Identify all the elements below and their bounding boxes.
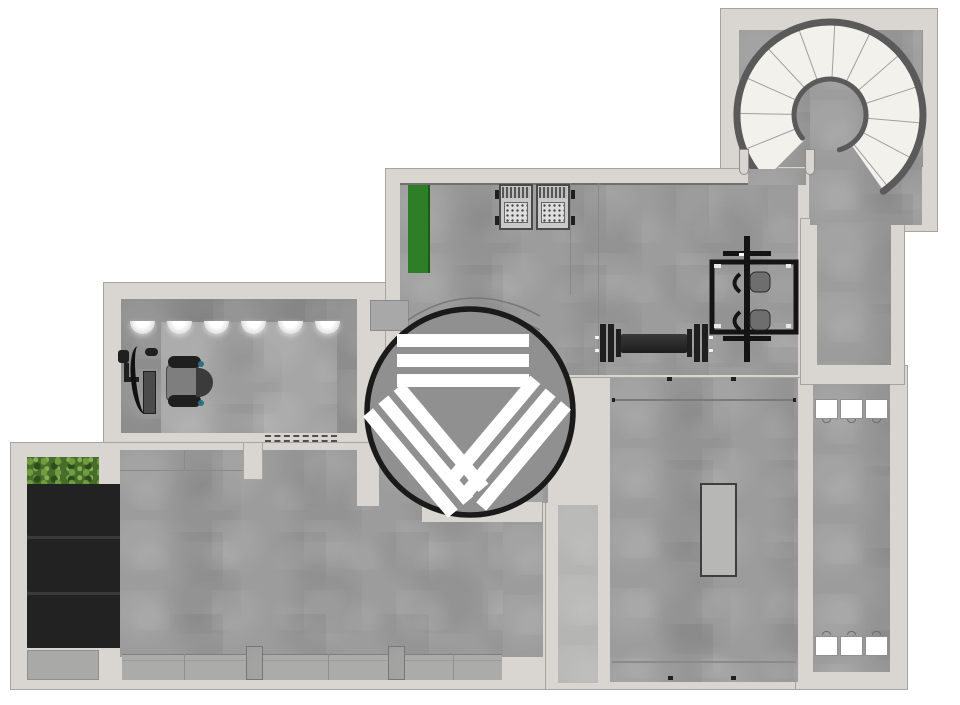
- barbell-bar: [621, 334, 687, 353]
- rail-end: [612, 398, 615, 402]
- corridor-floor: [817, 222, 891, 365]
- bin-handle: [872, 631, 881, 635]
- floor-plan-canvas: [0, 0, 960, 705]
- white-bin: [865, 636, 888, 656]
- green-exercise-mat: [408, 185, 430, 273]
- rack-post: [571, 216, 575, 225]
- rack-tray: [541, 202, 565, 223]
- bin-handle: [847, 631, 856, 635]
- gym-room-top-edge: [400, 183, 798, 185]
- stair-doorway-floor: [748, 169, 806, 185]
- wall-rail-bottom: [612, 661, 796, 663]
- rack-grill: [539, 187, 567, 198]
- machine-accent: [198, 400, 204, 406]
- black-cabinets: [27, 484, 121, 648]
- bin-handle: [822, 631, 831, 635]
- wall-stub: [243, 442, 263, 480]
- white-bin: [815, 399, 838, 419]
- doorway-stub: [805, 149, 815, 175]
- power-rack: [706, 236, 802, 364]
- main-room-seam: [120, 470, 247, 471]
- nook-floor-patch: [27, 650, 99, 680]
- machine-pad: [143, 371, 156, 414]
- white-bin: [840, 399, 863, 419]
- office-right-strip: [337, 299, 357, 433]
- wall-pillar: [246, 646, 263, 680]
- machine-headrest: [196, 368, 213, 397]
- window-seam: [184, 654, 185, 680]
- barbell-plate: [694, 324, 700, 362]
- wall-tick: [731, 377, 736, 381]
- circle-stripe-logo: [360, 302, 581, 523]
- white-bin: [815, 636, 838, 656]
- rack-unit: [536, 184, 570, 230]
- wall-rail-top: [612, 399, 796, 401]
- rail-tick: [731, 676, 736, 680]
- narrow-room-floor: [813, 384, 890, 672]
- storage-rack: [499, 184, 571, 231]
- machine-grip: [145, 348, 158, 356]
- black-cabinet: [27, 595, 121, 648]
- loaded-barbell: [594, 322, 714, 364]
- black-cabinet: [27, 539, 121, 592]
- floor-mat: [700, 483, 737, 577]
- planter-greenery: [27, 457, 99, 485]
- white-bin: [840, 636, 863, 656]
- window-seam: [328, 654, 329, 680]
- rack-post: [571, 190, 575, 199]
- white-bin: [865, 399, 888, 419]
- barbell-plate: [687, 329, 692, 357]
- machine-accent: [198, 361, 204, 367]
- rail-end: [793, 398, 796, 402]
- rack-tray: [504, 202, 528, 223]
- barbell-plate: [608, 324, 614, 362]
- machine-knob: [118, 350, 129, 363]
- wall-tick: [667, 377, 672, 381]
- wall-pillar: [388, 646, 405, 680]
- barbell-plate: [600, 324, 606, 362]
- doorway-stub: [739, 149, 749, 175]
- black-cabinet: [27, 484, 121, 536]
- rack-grill: [502, 187, 530, 198]
- door-threshold: [265, 440, 337, 442]
- window-band-line: [122, 660, 502, 661]
- door-threshold: [265, 435, 337, 437]
- light-corridor-floor: [558, 505, 598, 683]
- main-room-seam-v: [184, 450, 185, 470]
- rack-unit: [499, 184, 533, 230]
- window-seam: [453, 654, 454, 680]
- rail-tick: [668, 676, 673, 680]
- machine-armrest: [168, 356, 201, 368]
- exercise-machine: [114, 344, 218, 418]
- window-band: [122, 654, 502, 680]
